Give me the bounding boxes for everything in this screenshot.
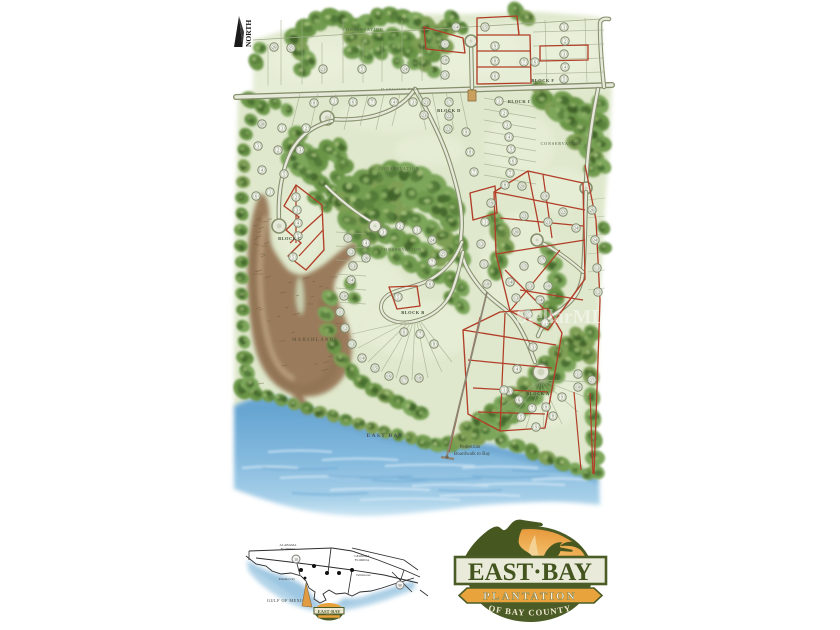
svg-text:CONSERVATION: CONSERVATION <box>343 27 384 32</box>
svg-text:2: 2 <box>305 126 307 131</box>
svg-text:7: 7 <box>419 332 421 337</box>
svg-text:6: 6 <box>429 282 431 287</box>
svg-text:10: 10 <box>485 282 489 287</box>
svg-text:1: 1 <box>333 99 335 104</box>
svg-text:10: 10 <box>576 385 580 390</box>
svg-text:EAST BAY: EAST BAY <box>367 433 404 439</box>
svg-text:3: 3 <box>296 208 298 213</box>
svg-text:2: 2 <box>503 111 505 116</box>
svg-text:8: 8 <box>494 59 496 64</box>
svg-text:11: 11 <box>346 236 350 241</box>
svg-text:19: 19 <box>489 201 493 206</box>
svg-text:6: 6 <box>494 74 496 79</box>
svg-text:13: 13 <box>351 264 355 269</box>
svg-text:8: 8 <box>504 183 506 188</box>
svg-text:PLANTATION ROAD: PLANTATION ROAD <box>381 87 420 91</box>
svg-text:12: 12 <box>596 290 600 295</box>
svg-text:98: 98 <box>398 584 402 588</box>
svg-text:25: 25 <box>441 252 445 257</box>
svg-text:19: 19 <box>543 194 547 199</box>
svg-text:BLOCK C: BLOCK C <box>278 236 302 241</box>
svg-text:FLORIDA: FLORIDA <box>281 547 296 551</box>
svg-text:Pedestrian: Pedestrian <box>460 445 481 450</box>
svg-text:2: 2 <box>564 39 566 44</box>
svg-text:2: 2 <box>277 148 279 153</box>
svg-text:CONSERVATION: CONSERVATION <box>381 247 422 252</box>
svg-text:Panama City: Panama City <box>279 577 296 581</box>
svg-text:17: 17 <box>402 378 406 383</box>
svg-text:20: 20 <box>260 122 264 127</box>
svg-text:10: 10 <box>294 558 298 562</box>
svg-text:6: 6 <box>255 194 257 199</box>
svg-text:Tallahassee: Tallahassee <box>356 573 371 577</box>
svg-text:22: 22 <box>522 214 526 219</box>
svg-text:11: 11 <box>482 262 486 267</box>
svg-text:16: 16 <box>546 284 550 289</box>
svg-text:FLORIDA: FLORIDA <box>355 558 370 562</box>
svg-text:5: 5 <box>510 147 512 152</box>
svg-text:6: 6 <box>403 330 405 335</box>
svg-text:BLOCK A: BLOCK A <box>526 391 550 396</box>
svg-text:5: 5 <box>283 172 285 177</box>
svg-text:7: 7 <box>509 171 511 176</box>
svg-text:5: 5 <box>397 295 399 300</box>
svg-text:3: 3 <box>532 345 534 350</box>
svg-text:BLOCK I: BLOCK I <box>508 99 530 104</box>
svg-text:2: 2 <box>399 224 401 229</box>
svg-text:7: 7 <box>523 60 525 65</box>
svg-text:8: 8 <box>469 150 471 155</box>
svg-text:CONSERVATION: CONSERVATION <box>541 141 582 146</box>
svg-text:12: 12 <box>343 326 347 331</box>
svg-text:11: 11 <box>576 372 580 377</box>
svg-text:13: 13 <box>350 342 354 347</box>
svg-text:7: 7 <box>531 406 533 411</box>
svg-text:20: 20 <box>514 230 518 235</box>
svg-text:23: 23 <box>546 220 550 225</box>
svg-text:EAST·BAY: EAST·BAY <box>468 559 592 586</box>
svg-text:StellarMLS: StellarMLS <box>516 306 616 328</box>
svg-text:EAST·BAY: EAST·BAY <box>318 609 341 614</box>
svg-text:6: 6 <box>512 159 514 164</box>
svg-text:1: 1 <box>563 25 565 30</box>
svg-text:3: 3 <box>563 52 565 57</box>
svg-text:13: 13 <box>443 73 447 78</box>
svg-text:3: 3 <box>382 230 384 235</box>
svg-text:25: 25 <box>289 46 293 51</box>
svg-text:5: 5 <box>520 415 522 420</box>
svg-text:13: 13 <box>528 284 532 289</box>
svg-text:8: 8 <box>552 414 554 419</box>
svg-text:20: 20 <box>520 184 524 189</box>
svg-text:3: 3 <box>257 144 259 149</box>
svg-text:13: 13 <box>514 296 518 301</box>
svg-text:6: 6 <box>518 398 520 403</box>
svg-text:12: 12 <box>349 250 353 255</box>
svg-text:2: 2 <box>295 195 297 200</box>
svg-text:7: 7 <box>431 260 433 265</box>
svg-text:NORTH: NORTH <box>244 20 253 47</box>
svg-text:1: 1 <box>484 220 486 225</box>
svg-text:7: 7 <box>473 170 475 175</box>
svg-text:3: 3 <box>506 123 508 128</box>
svg-text:15: 15 <box>522 264 526 269</box>
svg-text:15: 15 <box>483 25 487 30</box>
svg-text:5: 5 <box>361 67 363 72</box>
svg-text:17: 17 <box>447 100 451 105</box>
svg-text:26: 26 <box>364 256 368 261</box>
svg-text:6: 6 <box>352 100 354 105</box>
svg-text:BLOCK B: BLOCK B <box>401 310 424 315</box>
svg-text:MARSHLANDS: MARSHLANDS <box>292 338 338 343</box>
svg-text:11: 11 <box>338 310 342 315</box>
svg-text:BLOCK D: BLOCK D <box>437 108 461 113</box>
svg-text:1: 1 <box>498 99 500 104</box>
svg-text:1: 1 <box>503 388 505 393</box>
svg-text:21: 21 <box>424 100 428 105</box>
svg-text:9: 9 <box>561 395 563 400</box>
svg-text:18: 18 <box>417 376 421 381</box>
svg-text:17: 17 <box>540 258 544 263</box>
svg-text:PLANTATION: PLANTATION <box>483 591 577 603</box>
svg-text:1: 1 <box>281 126 283 131</box>
svg-text:Boardwalk to Bay: Boardwalk to Bay <box>454 452 491 457</box>
svg-text:9: 9 <box>465 130 467 135</box>
svg-text:8: 8 <box>313 101 315 106</box>
svg-text:5: 5 <box>563 77 565 82</box>
svg-text:1: 1 <box>416 228 418 233</box>
svg-text:11: 11 <box>443 42 447 47</box>
svg-text:10: 10 <box>443 58 447 63</box>
svg-text:3: 3 <box>299 148 301 153</box>
svg-text:7: 7 <box>371 100 373 105</box>
svg-text:10: 10 <box>342 294 346 299</box>
svg-text:13: 13 <box>595 266 599 271</box>
svg-text:22: 22 <box>446 127 450 132</box>
svg-text:CONSERVATION: CONSERVATION <box>379 166 420 171</box>
svg-text:6: 6 <box>534 60 536 65</box>
svg-text:9: 9 <box>535 425 537 430</box>
svg-text:26: 26 <box>590 208 594 213</box>
svg-text:23: 23 <box>321 67 325 72</box>
svg-text:9: 9 <box>494 44 496 49</box>
svg-text:22: 22 <box>561 210 565 215</box>
svg-text:22: 22 <box>447 114 451 119</box>
svg-text:8: 8 <box>545 405 547 410</box>
svg-text:25: 25 <box>590 378 594 383</box>
svg-text:26: 26 <box>272 45 276 50</box>
svg-text:BLOCK F: BLOCK F <box>531 78 554 83</box>
svg-text:3: 3 <box>412 100 414 105</box>
svg-text:5: 5 <box>292 255 294 260</box>
svg-text:12: 12 <box>479 242 483 247</box>
svg-text:8: 8 <box>433 342 435 347</box>
svg-text:1: 1 <box>269 190 271 195</box>
svg-text:15: 15 <box>373 366 377 371</box>
svg-text:23: 23 <box>422 113 426 118</box>
svg-text:16: 16 <box>387 374 391 379</box>
